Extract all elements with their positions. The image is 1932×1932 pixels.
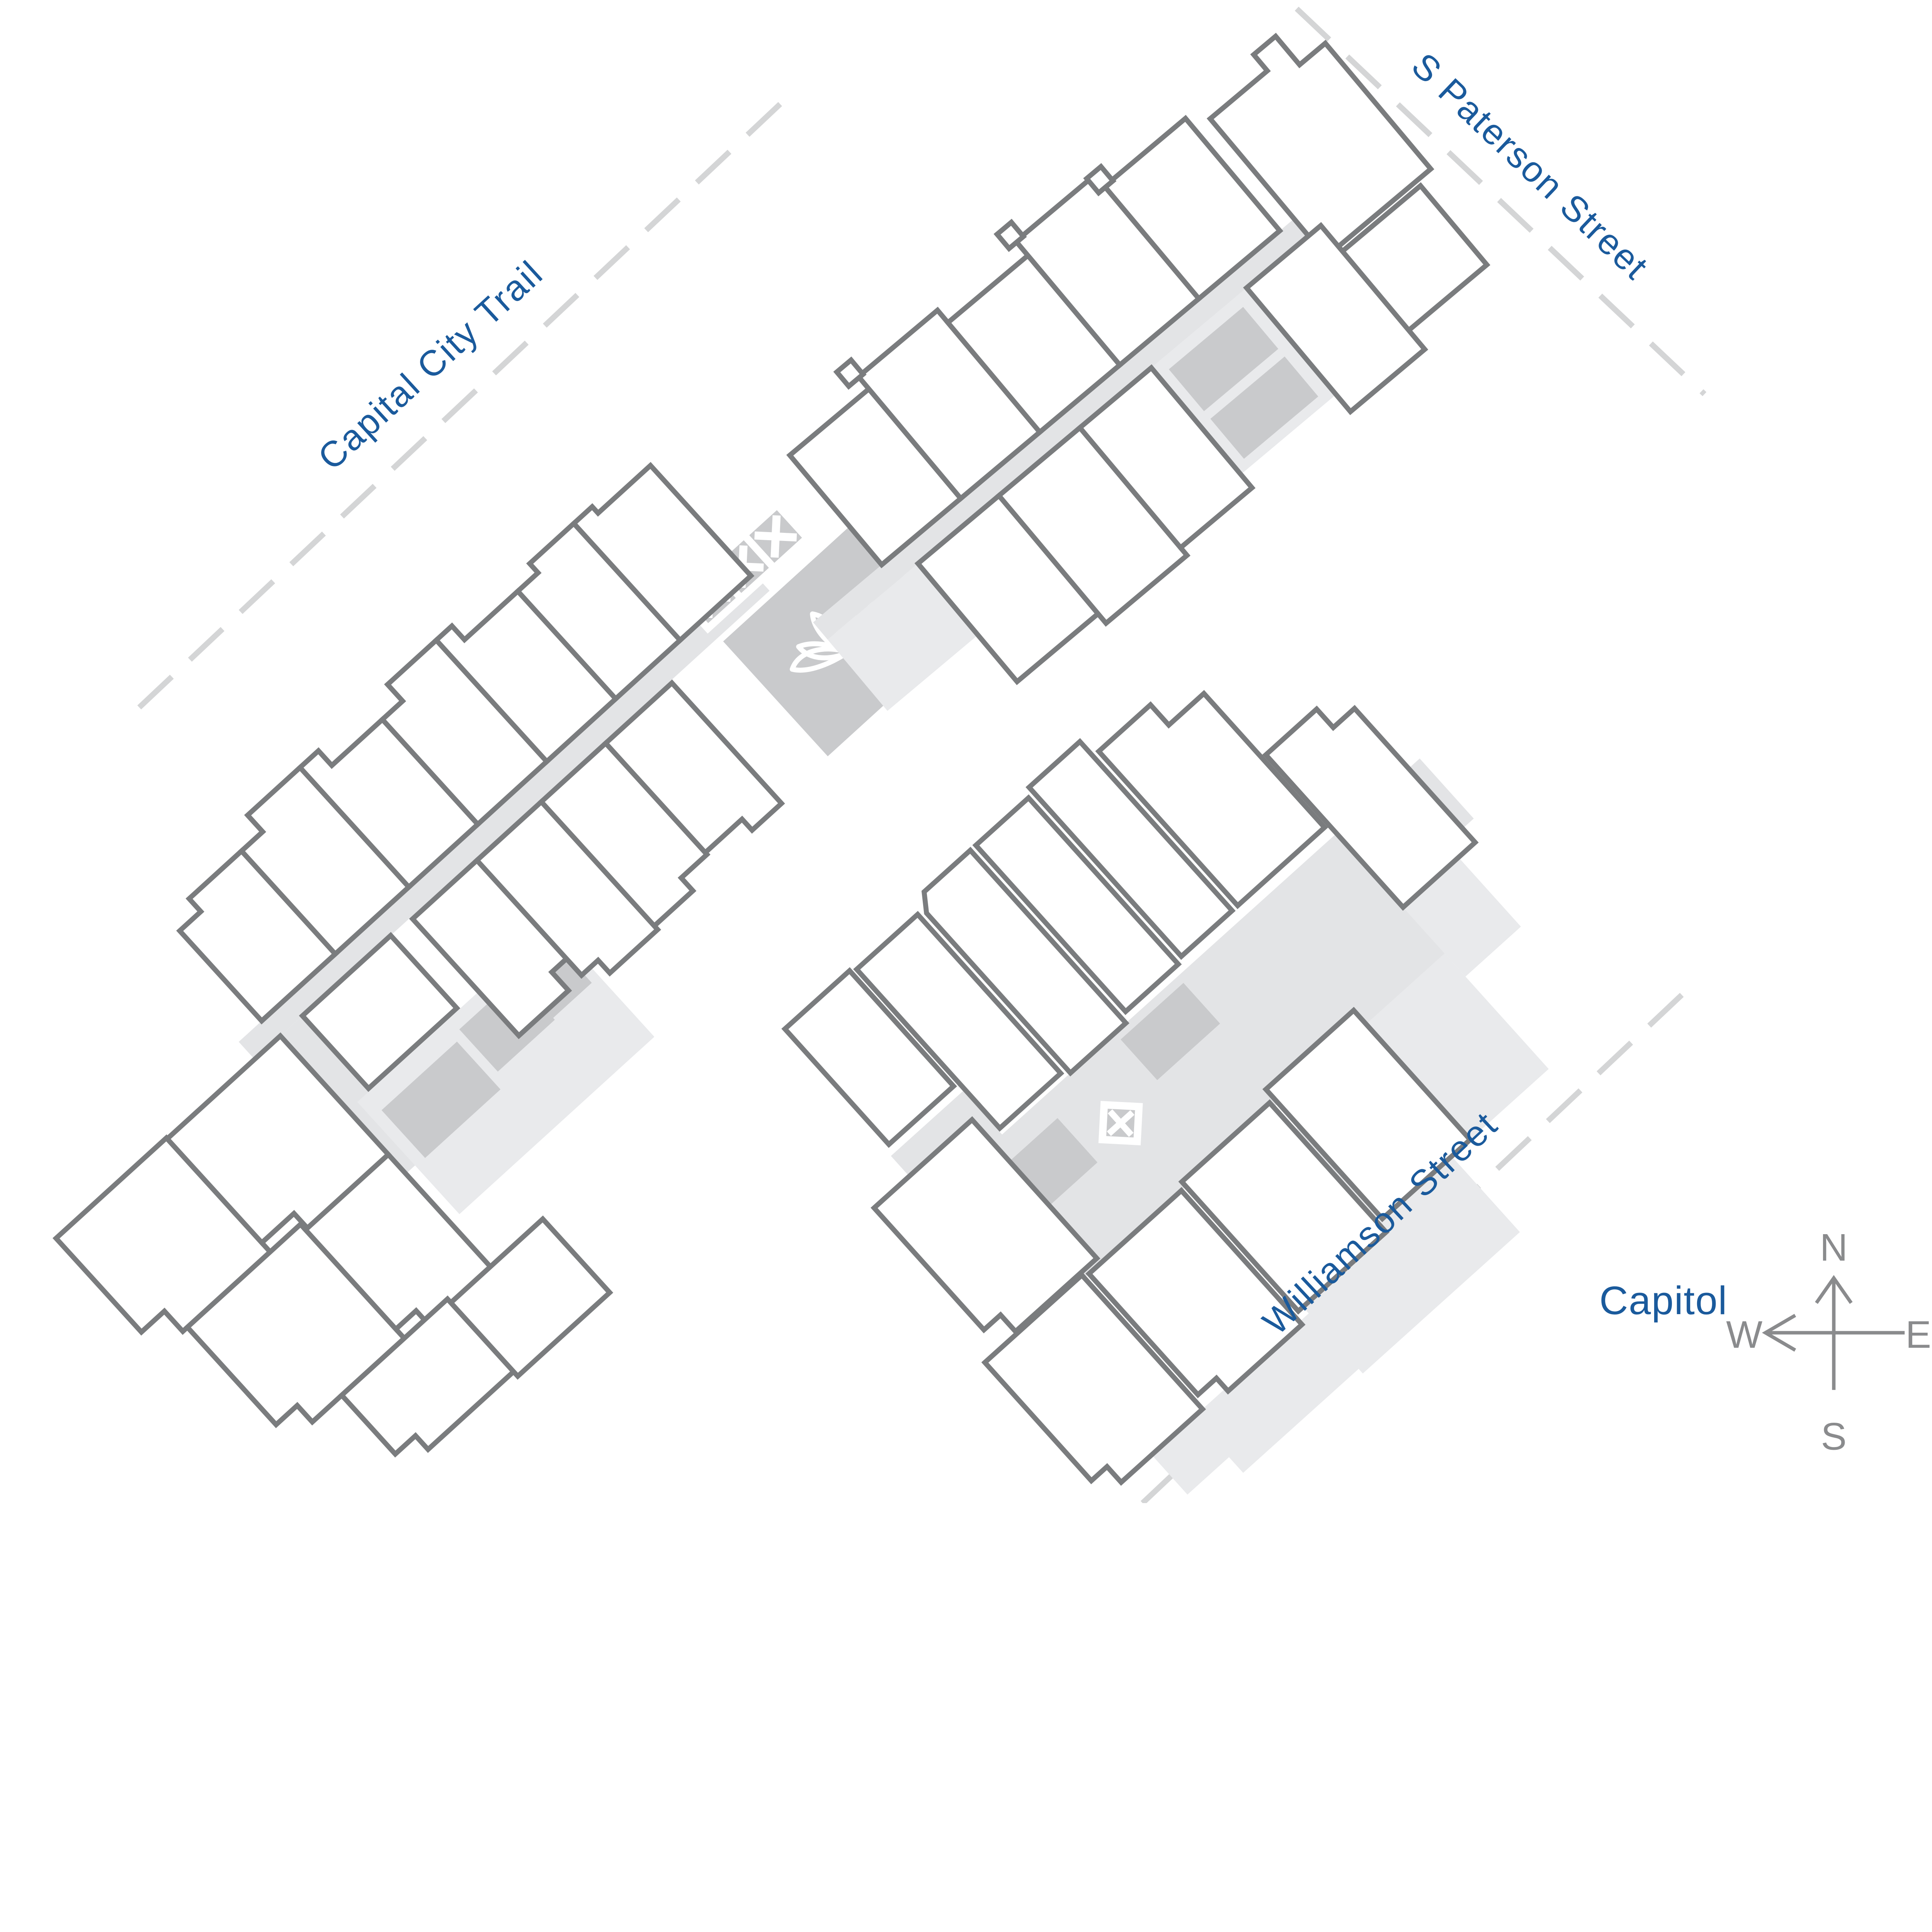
community-site-map: Capital City Trail S Paterson Street Wil… [0,0,1932,1503]
compass-label-n: N [1820,1226,1848,1269]
site-map-page: Capital City Trail S Paterson Street Wil… [0,0,1932,1503]
compass-label-w: W [1726,1313,1762,1356]
capitol-label: Capitol [1599,1278,1728,1323]
compass-label-e: E [1905,1313,1931,1356]
balcony-tab [837,360,863,386]
compass-label-s: S [1821,1415,1847,1458]
stair-cross-icon [1099,1101,1143,1145]
compass-rose-icon: N E S W [1726,1226,1931,1458]
street-label-capital-city-trail: Capital City Trail [310,253,551,478]
